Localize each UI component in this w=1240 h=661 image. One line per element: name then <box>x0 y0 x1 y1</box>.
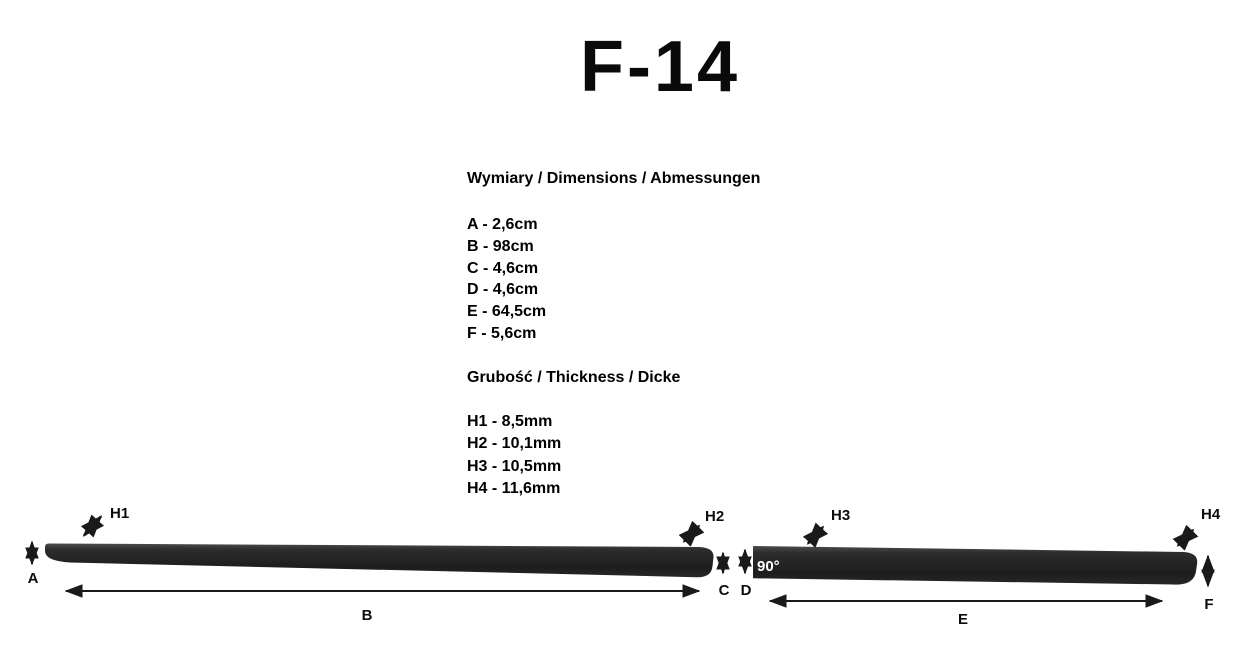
h2-pointer-arrow-icon <box>684 526 699 542</box>
dimension-f-label: F <box>1204 596 1213 613</box>
angle-90-label: 90° <box>757 558 780 575</box>
dimension-a-label: A <box>28 570 39 587</box>
h1-pointer-arrow-icon <box>84 517 101 536</box>
moulding-diagram: 90° H1 H2 H3 H4 A B C D E F <box>0 0 1240 661</box>
h3-pointer-arrow-icon <box>808 527 823 544</box>
h3-label: H3 <box>831 507 850 524</box>
right-strip-shape <box>753 546 1197 585</box>
h4-pointer-arrow-icon <box>1178 530 1193 546</box>
h1-label: H1 <box>110 505 129 522</box>
h4-label: H4 <box>1201 506 1221 523</box>
left-strip-shape <box>45 544 714 578</box>
dimension-c-label: C <box>719 582 730 599</box>
dimension-e-label: E <box>958 611 968 628</box>
h2-label: H2 <box>705 508 724 525</box>
spec-sheet-page: F-14 Wymiary / Dimensions / Abmessungen … <box>0 0 1240 661</box>
dimension-d-label: D <box>741 582 752 599</box>
dimension-b-label: B <box>362 607 373 624</box>
